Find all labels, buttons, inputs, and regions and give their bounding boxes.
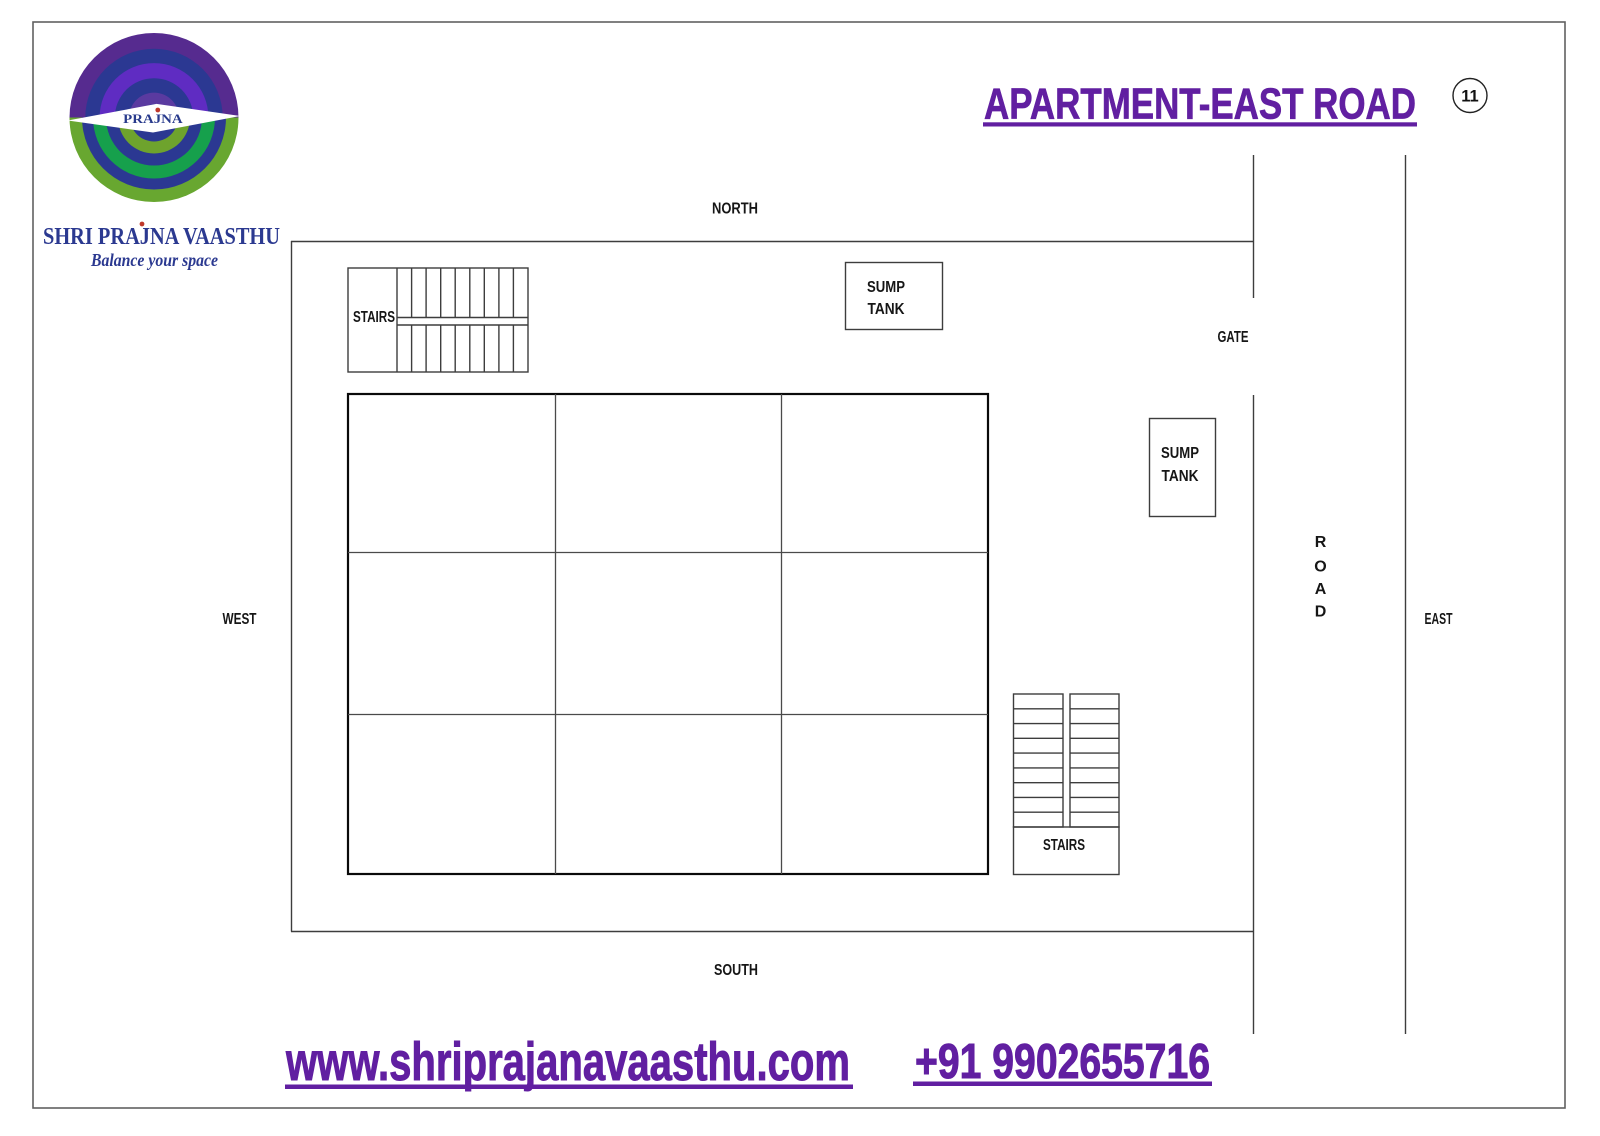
- svg-text:SUMP: SUMP: [1161, 445, 1199, 462]
- svg-text:PRAJNA: PRAJNA: [123, 111, 183, 126]
- svg-text:WEST: WEST: [223, 611, 257, 628]
- svg-text:SOUTH: SOUTH: [714, 962, 758, 979]
- svg-text:TANK: TANK: [868, 301, 905, 318]
- svg-text:NORTH: NORTH: [712, 201, 758, 218]
- svg-text:R: R: [1315, 534, 1327, 551]
- svg-text:www.shriprajanavaasthu.com: www.shriprajanavaasthu.com: [285, 1032, 850, 1092]
- svg-text:A: A: [1315, 581, 1327, 598]
- svg-text:TANK: TANK: [1162, 468, 1199, 485]
- svg-text:+91 9902655716: +91 9902655716: [915, 1035, 1210, 1089]
- svg-text:O: O: [1314, 559, 1326, 576]
- svg-text:SUMP: SUMP: [867, 279, 905, 296]
- svg-text:STAIRS: STAIRS: [353, 309, 395, 326]
- svg-text:STAIRS: STAIRS: [1043, 837, 1085, 854]
- svg-text:11: 11: [1461, 88, 1478, 106]
- svg-text:D: D: [1315, 604, 1327, 621]
- svg-text:SHRI PRAJNA VAASTHU: SHRI PRAJNA VAASTHU: [43, 223, 280, 250]
- svg-text:APARTMENT-EAST ROAD: APARTMENT-EAST ROAD: [984, 80, 1416, 129]
- svg-text:GATE: GATE: [1218, 329, 1249, 346]
- svg-text:Balance your space: Balance your space: [90, 250, 218, 270]
- svg-text:EAST: EAST: [1425, 611, 1453, 628]
